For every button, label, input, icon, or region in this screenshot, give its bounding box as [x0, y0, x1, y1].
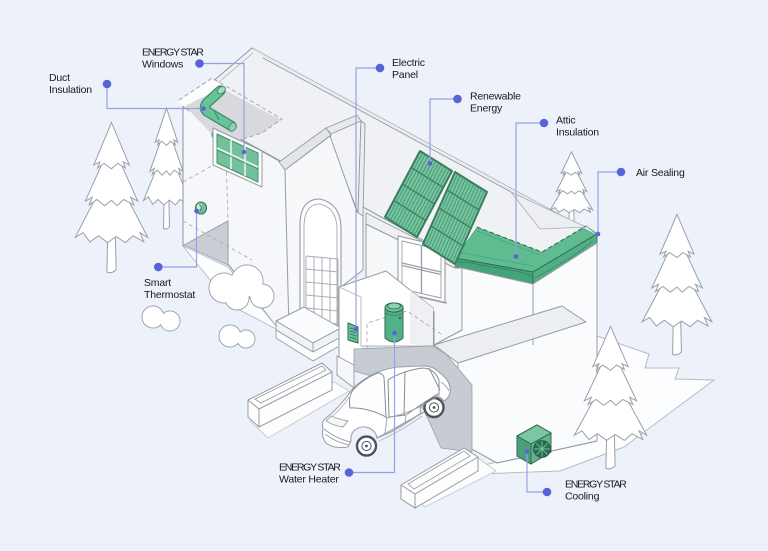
svg-text:Insulation: Insulation: [556, 127, 599, 139]
svg-text:Insulation: Insulation: [49, 84, 92, 96]
svg-text:Air Sealing: Air Sealing: [636, 167, 685, 179]
svg-text:Thermostat: Thermostat: [144, 289, 195, 301]
svg-text:Smart: Smart: [144, 277, 171, 289]
svg-text:Windows: Windows: [142, 59, 183, 71]
svg-text:Electric: Electric: [392, 57, 425, 69]
svg-text:Cooling: Cooling: [565, 491, 600, 503]
svg-text:Duct: Duct: [49, 72, 70, 84]
svg-text:Attic: Attic: [556, 115, 575, 127]
svg-text:Renewable: Renewable: [470, 91, 521, 103]
svg-text:Panel: Panel: [392, 69, 418, 81]
svg-text:ENERGY STAR: ENERGY STAR: [565, 479, 627, 491]
svg-text:Water Heater: Water Heater: [279, 474, 339, 486]
svg-text:ENERGY STAR: ENERGY STAR: [279, 462, 341, 474]
svg-text:ENERGY STAR: ENERGY STAR: [142, 47, 204, 59]
svg-text:Energy: Energy: [470, 103, 503, 115]
